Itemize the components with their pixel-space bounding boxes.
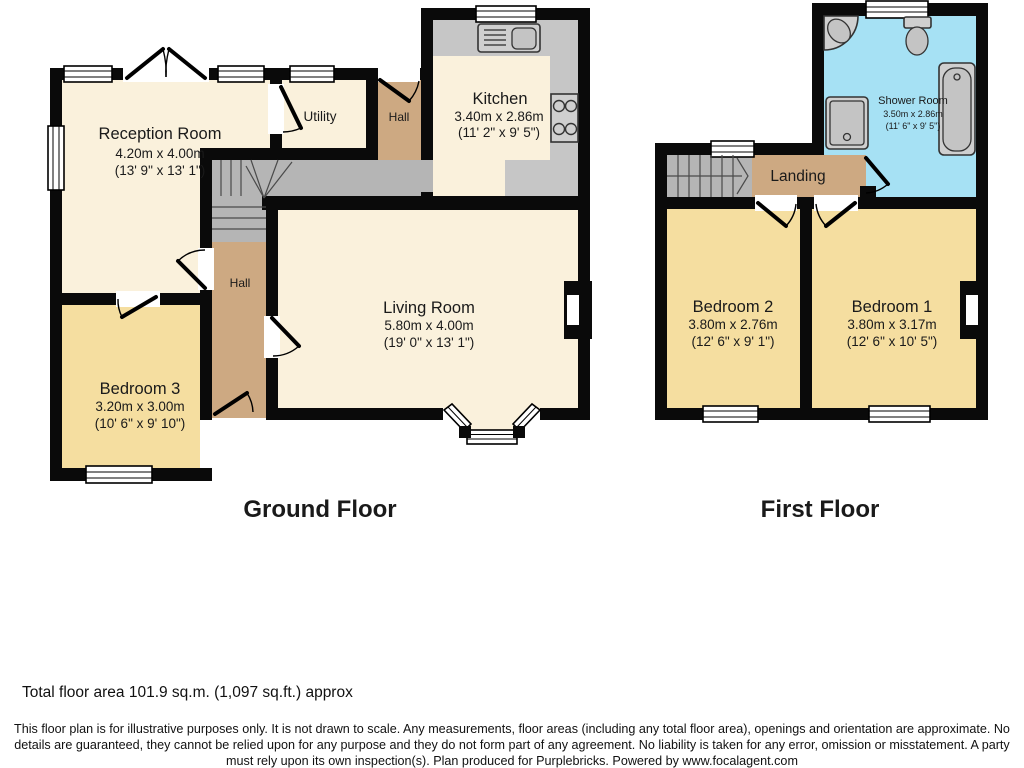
window-shower xyxy=(866,1,928,18)
bedroom1-metric: 3.80m x 3.17m xyxy=(847,317,936,332)
bath-icon xyxy=(939,63,975,155)
kitchen-metric: 3.40m x 2.86m xyxy=(454,109,543,124)
window-reception-top-right xyxy=(218,66,264,82)
bedroom1-label: Bedroom 1 xyxy=(852,298,933,316)
shower-metric: 3.50m x 2.86m xyxy=(883,109,943,119)
first-floor-title: First Floor xyxy=(761,496,880,523)
window-bedroom2 xyxy=(703,406,758,422)
living-imperial: (19' 0" x 13' 1") xyxy=(384,335,475,350)
window-stairs-landing xyxy=(711,141,754,157)
shower-tray-icon xyxy=(826,97,868,149)
window-utility xyxy=(290,66,334,82)
room-hall-mid xyxy=(212,242,266,418)
chimney-bedroom1 xyxy=(960,281,988,339)
chimney-living xyxy=(564,281,592,339)
reception-imperial: (13' 9" x 13' 1") xyxy=(115,163,206,178)
floorplan-drawing: Reception Room 4.20m x 4.00m (13' 9" x 1… xyxy=(0,0,1024,768)
floorplan-page: Reception Room 4.20m x 4.00m (13' 9" x 1… xyxy=(0,0,1024,768)
hob-icon xyxy=(551,94,578,142)
utility-label: Utility xyxy=(304,109,337,124)
kitchen-counter-bottom xyxy=(505,160,578,196)
window-reception-left xyxy=(48,126,64,190)
living-label: Living Room xyxy=(383,299,475,317)
bedroom3-metric: 3.20m x 3.00m xyxy=(95,399,184,414)
hall-top-label: Hall xyxy=(389,110,410,124)
total-floor-area: Total floor area 101.9 sq.m. (1,097 sq.f… xyxy=(22,684,353,702)
kitchen-imperial: (11' 2" x 9' 5") xyxy=(458,125,540,140)
corridor xyxy=(266,160,433,196)
bedroom2-metric: 3.80m x 2.76m xyxy=(688,317,777,332)
reception-metric: 4.20m x 4.00m xyxy=(115,146,204,161)
hall-mid-label: Hall xyxy=(230,276,251,290)
bedroom3-label: Bedroom 3 xyxy=(100,380,181,398)
bedroom1-imperial: (12' 6" x 10' 5") xyxy=(847,334,938,349)
bedroom3-imperial: (10' 6" x 9' 10") xyxy=(95,416,186,431)
bedroom2-imperial: (12' 6" x 9' 1") xyxy=(691,334,774,349)
window-bedroom1 xyxy=(869,406,930,422)
living-metric: 5.80m x 4.00m xyxy=(384,318,473,333)
ground-floor-title: Ground Floor xyxy=(243,496,396,523)
shower-imperial: (11' 6" x 9' 5") xyxy=(886,121,941,131)
kitchen-label: Kitchen xyxy=(472,90,527,108)
reception-label: Reception Room xyxy=(99,125,222,143)
disclaimer-text: This floor plan is for illustrative purp… xyxy=(9,721,1015,768)
window-kitchen xyxy=(476,6,536,22)
bedroom2-label: Bedroom 2 xyxy=(693,298,774,316)
window-reception-top-left xyxy=(64,66,112,82)
shower-label: Shower Room xyxy=(878,95,948,107)
landing-label: Landing xyxy=(770,168,825,185)
sink-icon xyxy=(478,24,540,52)
ground-floor-plan: Reception Room 4.20m x 4.00m (13' 9" x 1… xyxy=(48,6,592,483)
window-bedroom3 xyxy=(86,466,152,483)
first-floor-plan: Shower Room 3.50m x 2.86m (11' 6" x 9' 5… xyxy=(655,1,988,422)
stairs-ground xyxy=(212,160,266,242)
